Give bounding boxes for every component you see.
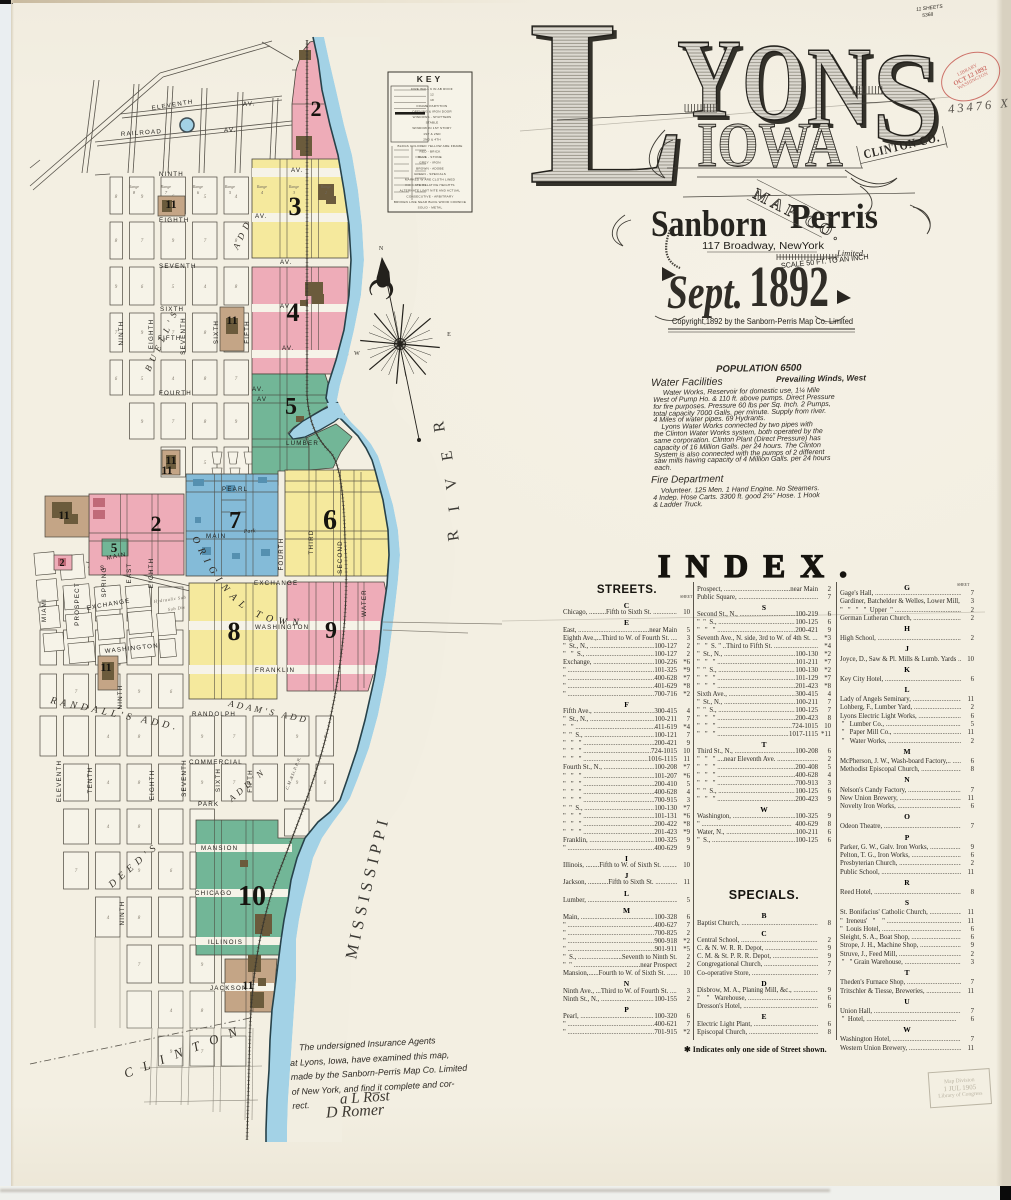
svg-text:EIGHTH: EIGHTH [148, 558, 155, 589]
svg-text:KEY: KEY [417, 74, 443, 84]
svg-text:8: 8 [228, 617, 241, 646]
svg-text:STABLE: STABLE [426, 121, 439, 125]
svg-text:Range: Range [192, 184, 203, 189]
svg-text:BROKEN LINE NEAR BLDG WOOD COR: BROKEN LINE NEAR BLDG WOOD CORNICE [394, 200, 466, 204]
svg-text:EIGHTH: EIGHTH [149, 770, 156, 801]
svg-text:R: R [430, 420, 449, 434]
svg-text:Range: Range [288, 184, 299, 189]
svg-text:SIXTH: SIXTH [215, 768, 222, 792]
svg-text:EXCHANGE: EXCHANGE [254, 580, 298, 587]
svg-text:11: 11 [242, 978, 253, 992]
svg-text:SEVENTH: SEVENTH [181, 759, 188, 797]
svg-text:2: 2 [311, 96, 322, 121]
svg-text:5: 5 [285, 394, 297, 420]
svg-text:9: 9 [325, 618, 337, 644]
svg-text:INDICATE RELATIVE HEIGHTS: INDICATE RELATIVE HEIGHTS [405, 183, 454, 187]
svg-text:SOLID - METAL: SOLID - METAL [418, 206, 443, 210]
svg-text:NINTH: NINTH [117, 685, 124, 710]
svg-text:GREEN - SPECIALS: GREEN - SPECIALS [414, 172, 446, 176]
svg-text:RANDOLPH: RANDOLPH [192, 711, 236, 718]
svg-text:MAIN: MAIN [206, 533, 226, 540]
svg-text:AV.: AV. [282, 345, 295, 352]
svg-text:117 Broadway, NewYork: 117 Broadway, NewYork [702, 241, 825, 252]
svg-text:WINDOW IN 1ST STORY: WINDOW IN 1ST STORY [412, 126, 451, 130]
svg-text:COMMERCIAL: COMMERCIAL [189, 759, 243, 766]
svg-text:FIFTH: FIFTH [244, 320, 251, 344]
svg-text:PARK: PARK [198, 801, 219, 808]
svg-text:Range: Range [128, 184, 139, 189]
svg-text:SEVENTH: SEVENTH [180, 317, 187, 355]
svg-text:11: 11 [226, 313, 237, 327]
svg-text:MIAMI: MIAMI [41, 598, 48, 622]
svg-text:AV.: AV. [280, 259, 293, 266]
svg-text:RAILROAD: RAILROAD [121, 128, 163, 138]
svg-text:4: 4 [287, 298, 300, 327]
svg-text:11: 11 [100, 660, 111, 674]
svg-text:AV.: AV. [243, 100, 256, 108]
svg-text:Range: Range [320, 184, 331, 189]
svg-text:MARKED W ARE CLOTH LINED: MARKED W ARE CLOTH LINED [405, 178, 456, 182]
svg-text:Sanborn: Sanborn [651, 204, 767, 245]
svg-text:MANSION: MANSION [201, 845, 238, 852]
svg-text:THIRD: THIRD [308, 530, 315, 555]
svg-text:SIXTH: SIXTH [213, 320, 220, 344]
svg-text:CHICAGO: CHICAGO [195, 890, 232, 897]
svg-text:11: 11 [161, 463, 172, 477]
svg-text:1ST & 2ND: 1ST & 2ND [423, 132, 441, 136]
svg-text:PEARL: PEARL [222, 486, 248, 493]
svg-text:2: 2 [60, 558, 65, 569]
svg-text:FRAME PARTITION: FRAME PARTITION [417, 104, 448, 108]
svg-text:11: 11 [165, 197, 176, 211]
svg-text:TENTH: TENTH [87, 767, 94, 794]
svg-text:EIGHTH: EIGHTH [159, 217, 190, 224]
svg-text:NINTH: NINTH [118, 321, 125, 346]
svg-text:Copyright,1892 by the Sanborn-: Copyright,1892 by the Sanborn-Perris Map… [672, 316, 853, 326]
svg-text:L: L [528, 0, 687, 234]
svg-text:BROWN - ADOBE: BROWN - ADOBE [416, 166, 444, 170]
svg-text:V: V [442, 476, 461, 491]
svg-text:NINTH: NINTH [159, 171, 184, 178]
svg-text:N: N [379, 246, 384, 252]
svg-text:FRANKLIN: FRANKLIN [255, 667, 295, 674]
svg-text:IOWA: IOWA [697, 109, 843, 180]
svg-text:ILLINOIS: ILLINOIS [208, 939, 243, 946]
svg-text:PROSPECT: PROSPECT [74, 582, 81, 626]
svg-text:E: E [447, 332, 451, 338]
svg-text:E: E [438, 450, 456, 462]
svg-text:12: 12 [430, 93, 434, 97]
svg-text:AV: AV [257, 396, 267, 403]
svg-text:FIRE WALL 6 IN AB ROOF: FIRE WALL 6 IN AB ROOF [411, 87, 453, 91]
svg-text:SECOND: SECOND [337, 540, 344, 574]
svg-text:WINDOWS - SHUTTERS: WINDOWS - SHUTTERS [413, 115, 452, 119]
svg-text:5: 5 [111, 540, 118, 555]
svg-text:AV.: AV. [291, 167, 304, 174]
svg-text:11: 11 [58, 508, 69, 522]
svg-text:Range: Range [224, 184, 235, 189]
svg-text:3: 3 [289, 192, 302, 221]
svg-text:Park: Park [243, 528, 257, 535]
svg-text:AV.: AV. [255, 213, 268, 220]
svg-text:Sept.: Sept. [667, 266, 743, 319]
svg-text:W: W [354, 351, 360, 357]
svg-text:2ND & 4TH: 2ND & 4TH [423, 137, 441, 141]
svg-text:AV.: AV. [224, 127, 237, 134]
svg-text:FOURTH: FOURTH [159, 390, 192, 397]
svg-text:7: 7 [229, 508, 241, 534]
svg-text:SPRING: SPRING [101, 567, 108, 598]
svg-text:Range: Range [256, 184, 267, 189]
svg-text:LUMBER: LUMBER [286, 440, 319, 447]
svg-text:I: I [446, 505, 464, 513]
svg-text:FOURTH: FOURTH [278, 538, 285, 571]
svg-text:SEVENTH: SEVENTH [159, 263, 197, 270]
svg-text:18: 18 [430, 98, 434, 102]
svg-text:ELEVENTH: ELEVENTH [56, 760, 63, 802]
svg-text:EAST: EAST [126, 563, 133, 584]
svg-text:WATER: WATER [361, 589, 368, 617]
svg-text:2: 2 [151, 511, 162, 536]
svg-text:NINTH: NINTH [119, 901, 126, 926]
svg-text:6: 6 [323, 505, 337, 536]
svg-text:AV.: AV. [252, 386, 265, 393]
svg-text:CONSECUTIVE - ARBITRARY: CONSECUTIVE - ARBITRARY [406, 194, 453, 198]
svg-text:Range: Range [160, 184, 171, 189]
svg-text:BLDGS COLORED YELLOW ARE FRAME: BLDGS COLORED YELLOW ARE FRAME [397, 144, 462, 148]
svg-text:10: 10 [238, 881, 266, 912]
svg-text:ELEVENTH: ELEVENTH [151, 98, 194, 112]
